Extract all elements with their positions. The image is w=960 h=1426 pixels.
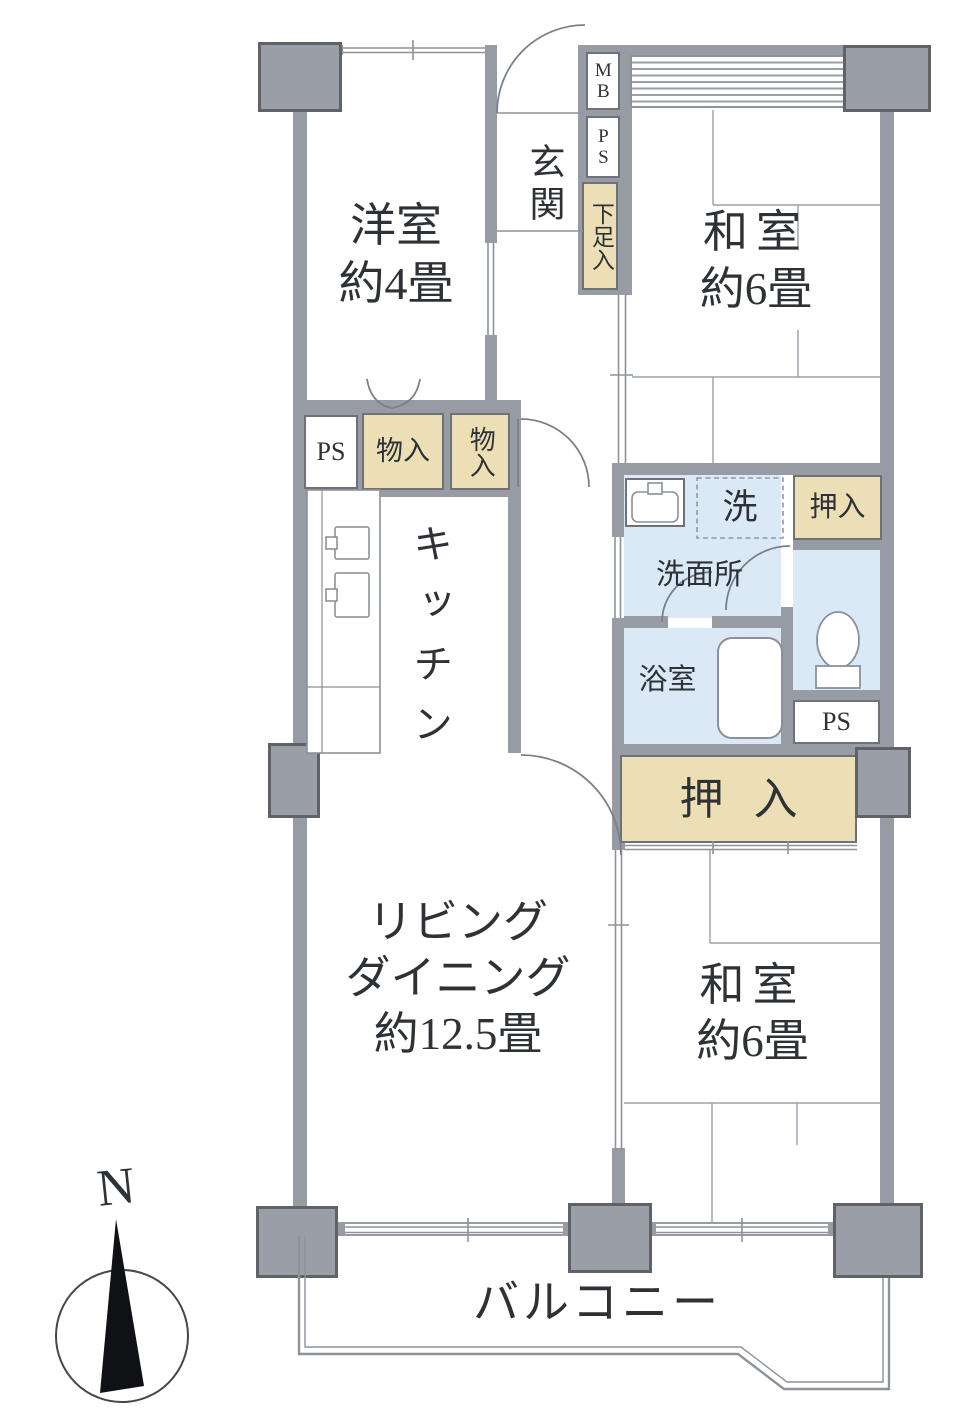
- western-room-size: 約4畳: [339, 255, 454, 313]
- bifold-door-icon: [367, 379, 420, 408]
- compass-icon: [56, 1219, 188, 1402]
- living-dining-line2: ダイニング: [345, 950, 570, 1006]
- sink-icon: [632, 483, 678, 522]
- kitchen-pipe-space-label: PS: [304, 415, 358, 489]
- storage-left-label: 物入: [362, 413, 444, 490]
- entrance-label: 玄関: [521, 132, 567, 237]
- balcony-label: バルコニー: [430, 1272, 765, 1334]
- japanese-room-bottom-size: 約6畳: [696, 1013, 809, 1069]
- kitchen-door-arc: [518, 419, 589, 487]
- storage-right-label: 物入: [450, 413, 510, 490]
- living-dining-label: リビング ダイニング 約12.5畳: [293, 878, 623, 1078]
- toilet-icon: [816, 612, 860, 688]
- japanese-room-top-name: 和室: [703, 204, 809, 260]
- washer-label: 洗: [697, 478, 783, 538]
- living-dining-line1: リビング: [368, 894, 548, 950]
- japanese-room-top-size: 約6畳: [700, 261, 813, 317]
- washroom-label: 洗面所: [612, 556, 787, 594]
- bathtub-icon: [718, 638, 782, 738]
- western-room-label: 洋室 約4畳: [286, 192, 506, 317]
- bathroom-label: 浴室: [615, 662, 720, 698]
- japanese-room-top-label: 和室 約6畳: [636, 198, 876, 323]
- shoe-storage-label: 下足入: [582, 186, 618, 286]
- toilet-pipe-space-label: PS: [793, 700, 880, 744]
- entry-door-arc: [497, 25, 585, 113]
- closet-top-label: 押入: [793, 477, 882, 537]
- kitchen-label: キッチン: [404, 498, 454, 788]
- western-room-name: 洋室: [350, 197, 442, 255]
- closet-bottom-label: 押入: [620, 757, 857, 841]
- japanese-room-bottom-name: 和室: [699, 957, 805, 1013]
- living-dining-size: 約12.5畳: [374, 1006, 543, 1062]
- japanese-room-bottom-label: 和室 約6畳: [630, 948, 875, 1078]
- floor-plan: 洋室 約4畳 玄関 MB PS 下足入 和室 約6畳 PS 物入 物入 キッチン…: [0, 0, 960, 1426]
- living-door-arc: [521, 755, 621, 855]
- pipe-space-label-top: PS: [586, 118, 620, 176]
- meter-box-label: MB: [586, 53, 620, 109]
- compass-north-label: N: [83, 1153, 149, 1221]
